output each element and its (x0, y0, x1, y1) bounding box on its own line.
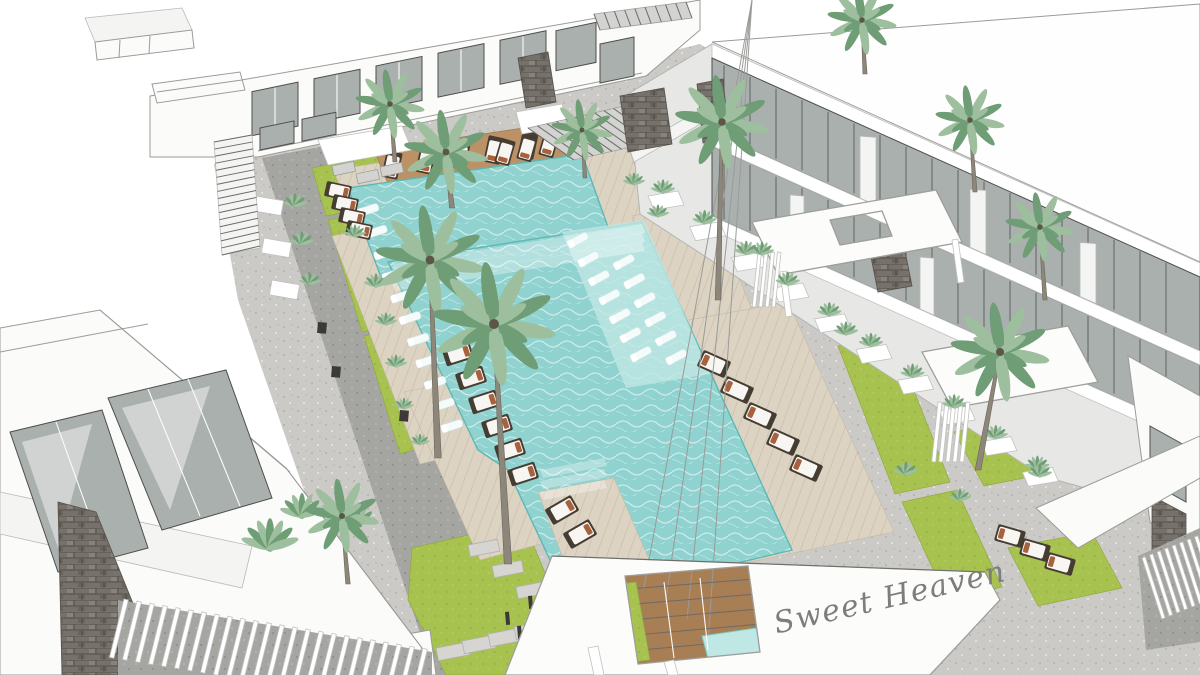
architectural-rendering: Sweet Heaven (0, 0, 1200, 675)
render-canvas: Sweet Heaven (0, 0, 1200, 675)
